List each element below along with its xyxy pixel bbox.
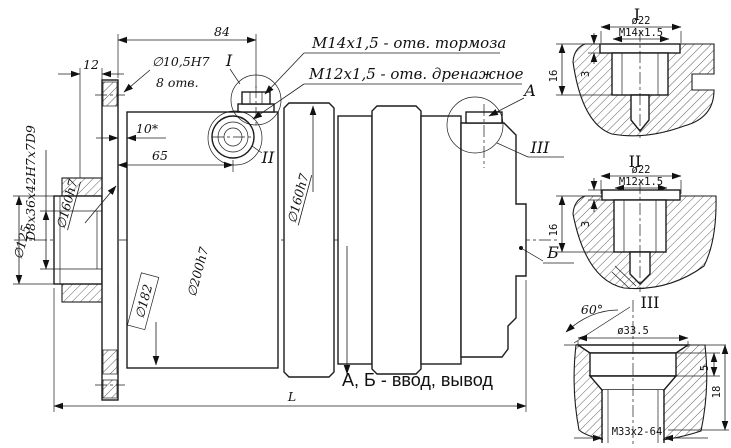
rear-cover <box>461 123 526 357</box>
brake-port-note: M14x1,5 - отв. тормоза <box>311 34 506 52</box>
detail-I-thread: M14x1.5 <box>619 27 663 39</box>
port-b-label: Б <box>546 243 559 262</box>
detail-III-angle: 60° <box>581 302 603 317</box>
port-a-label: А <box>523 81 536 100</box>
detail-view-II: II ø22 M12x1.5 16 3 <box>548 152 716 292</box>
engineering-drawing-sheet: I II А III Б M14x1,5 - отв. тормоза M12x… <box>0 0 731 448</box>
detail-II-depth: 16 <box>548 224 560 237</box>
ports-note: А, Б - ввод, вывод <box>342 370 493 390</box>
detail-II-label: II <box>261 148 275 167</box>
hydraulic-motor-drawing: I II А III Б M14x1,5 - отв. тормоза M12x… <box>0 0 731 448</box>
svg-text:84: 84 <box>214 24 230 39</box>
detail-III-label: III <box>530 138 551 157</box>
drain-port-plug <box>212 116 254 158</box>
detail-III-depth: 18 <box>711 386 723 399</box>
detail-III-cb-depth: 5 <box>699 365 711 371</box>
svg-text:10*: 10* <box>136 121 159 136</box>
svg-text:L: L <box>287 389 296 404</box>
detail-III-thread: M33x2-64 <box>612 426 663 438</box>
drain-port-note: M12x1,5 - отв. дренажное <box>308 65 524 83</box>
bolt-holes-callout: ∅10,5H7 8 отв. <box>124 54 210 92</box>
detail-I-depth: 16 <box>548 70 560 83</box>
detail-view-I: I ø22 M14x1.5 16 3 <box>548 5 714 138</box>
svg-text:12: 12 <box>83 57 99 72</box>
detail-view-III: III 60° ø33.5 5 18 M33x2-64 <box>564 293 729 447</box>
detail-I-dia: ø22 <box>632 15 651 27</box>
detail-II-dia: ø22 <box>632 164 651 176</box>
detail-II-head-depth: 3 <box>580 221 592 227</box>
housing-body <box>127 103 526 377</box>
svg-text:8 отв.: 8 отв. <box>156 75 199 90</box>
main-view: I II А III Б M14x1,5 - отв. тормоза M12x… <box>10 24 574 412</box>
svg-text:D8x36x42H7x7D9: D8x36x42H7x7D9 <box>23 125 38 242</box>
svg-text:∅10,5H7: ∅10,5H7 <box>152 54 210 69</box>
detail-II-thread: M12x1.5 <box>619 176 663 188</box>
detail-I-label: I <box>225 51 233 70</box>
svg-text:65: 65 <box>152 148 168 163</box>
detail-III-title: III <box>641 293 660 312</box>
detail-I-head-depth: 3 <box>580 71 592 77</box>
